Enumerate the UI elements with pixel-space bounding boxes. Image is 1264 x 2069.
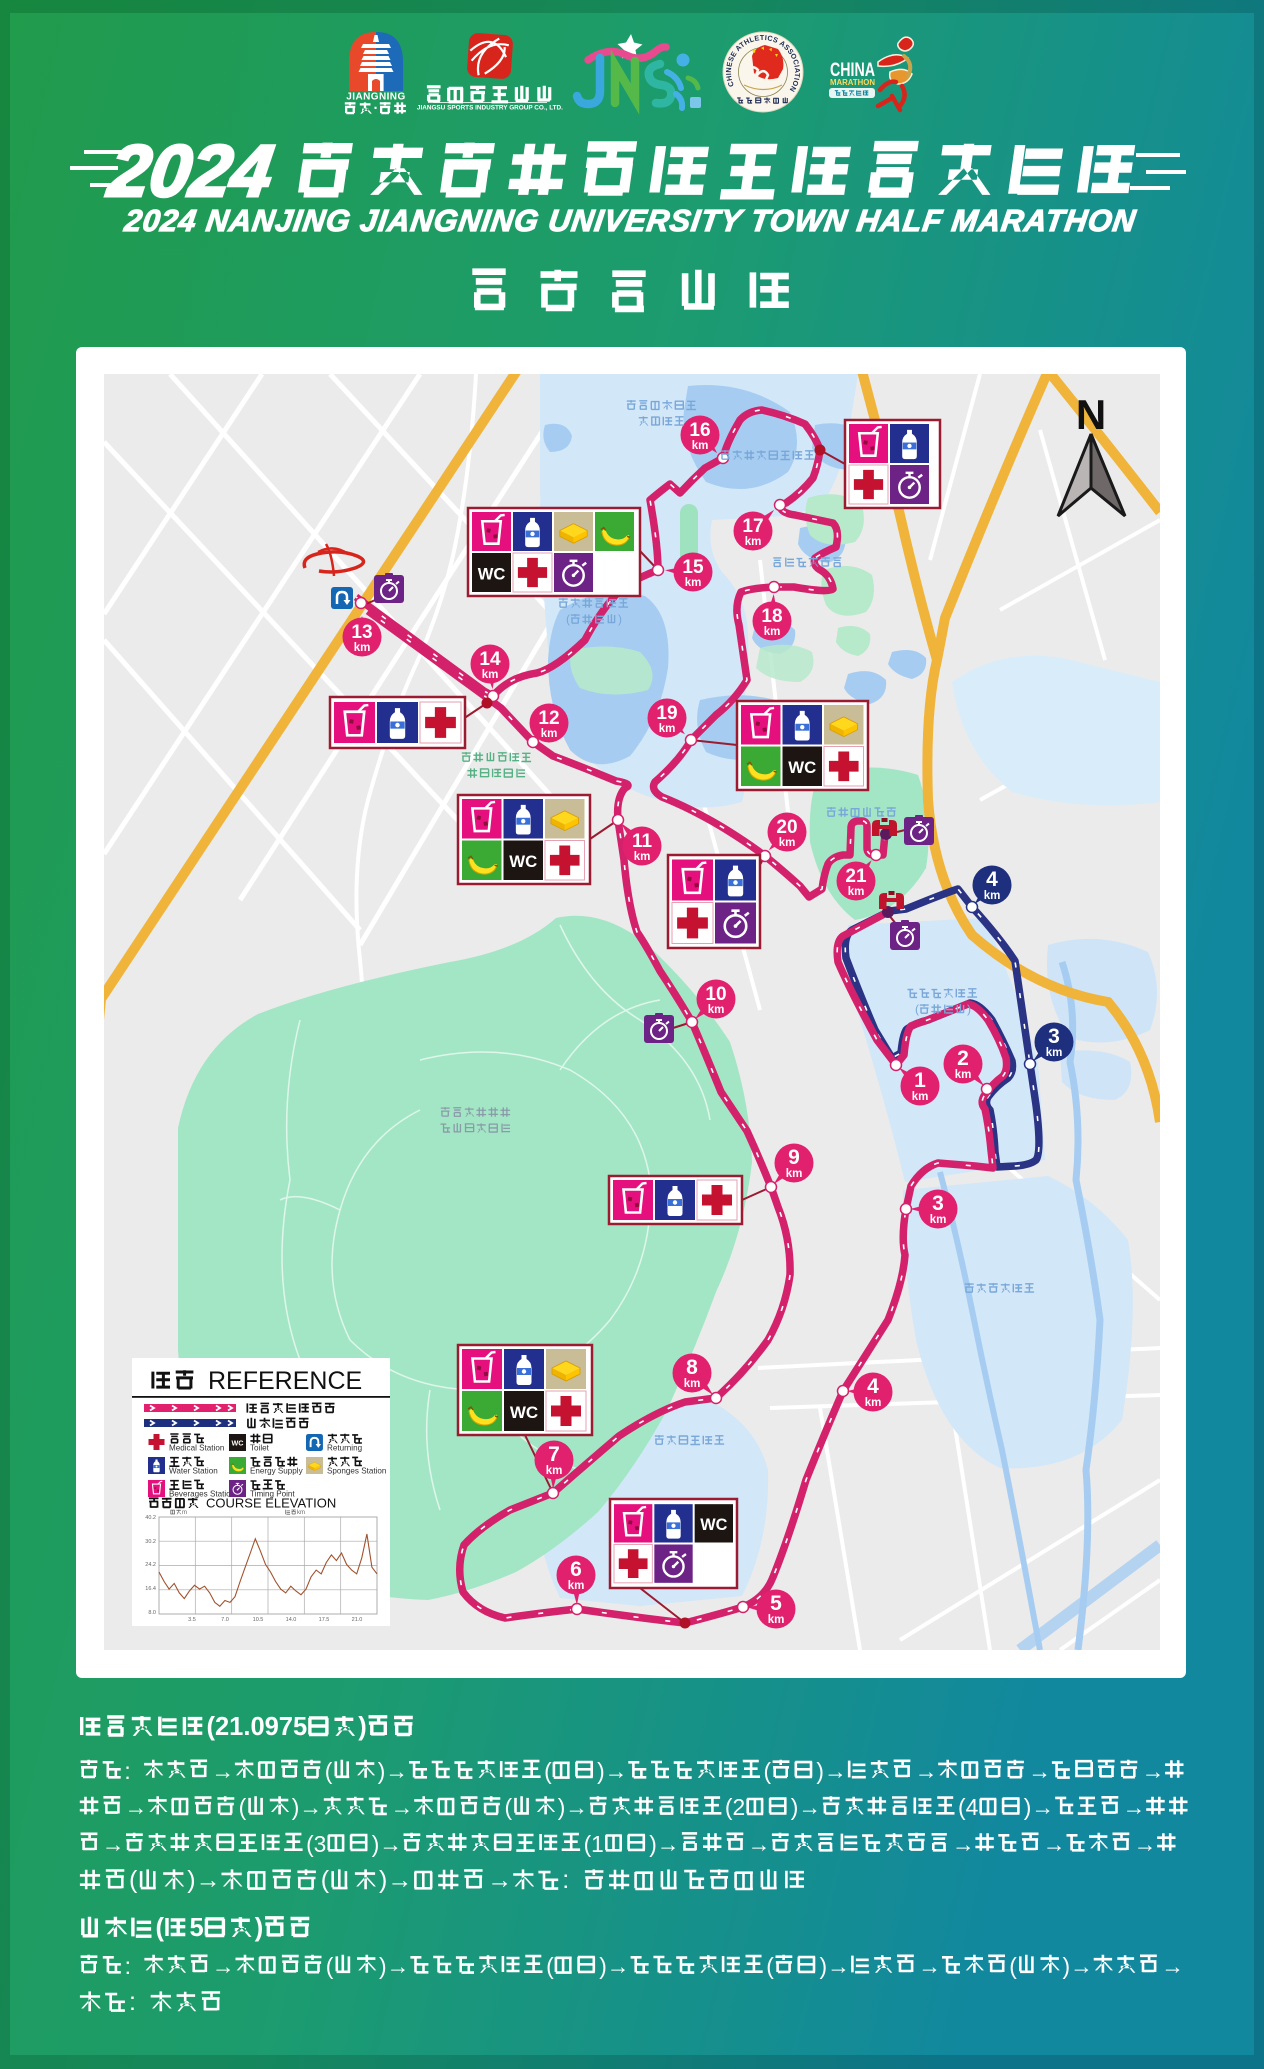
svg-text:10: 10: [705, 984, 726, 1005]
svg-text:(21.0975: (21.0975: [207, 1713, 308, 1741]
svg-text:)→: )→: [379, 1953, 409, 1979]
svg-text:)→: )→: [372, 1831, 402, 1857]
svg-text:WC: WC: [788, 758, 816, 777]
svg-text:km: km: [659, 723, 676, 735]
svg-text:COURSE ELEVATION: COURSE ELEVATION: [206, 1496, 336, 1511]
svg-text:): ): [255, 1914, 264, 1942]
svg-text:km: km: [786, 1168, 803, 1180]
svg-text:3: 3: [1048, 1025, 1060, 1048]
svg-text:3: 3: [932, 1192, 944, 1215]
svg-text:(: (: [505, 1794, 513, 1820]
svg-text:→: →: [918, 1953, 941, 1979]
svg-text:)→: )→: [379, 1866, 412, 1894]
svg-text:Energy Supply: Energy Supply: [250, 1466, 304, 1475]
svg-text:5: 5: [770, 1592, 782, 1615]
svg-text:km: km: [984, 890, 1001, 902]
svg-text:km: km: [541, 728, 558, 740]
svg-text::: :: [124, 1758, 130, 1784]
svg-text:30.2: 30.2: [145, 1539, 156, 1545]
svg-text:m: m: [182, 1510, 187, 1516]
svg-text:)→: )→: [599, 1953, 629, 1979]
svg-text:8.0: 8.0: [148, 1610, 156, 1616]
svg-text::: :: [129, 1988, 136, 2016]
svg-text:)→: )→: [820, 1953, 850, 1979]
svg-text:(: (: [156, 1914, 165, 1942]
svg-text:km: km: [955, 1069, 972, 1081]
svg-text:16.4: 16.4: [145, 1586, 156, 1592]
svg-text:km: km: [779, 837, 796, 849]
svg-text:): ): [358, 1713, 367, 1741]
svg-text:km: km: [685, 577, 702, 589]
svg-text:Sponges Station: Sponges Station: [327, 1466, 386, 1475]
svg-text:km: km: [546, 1465, 563, 1477]
svg-text:)→: )→: [187, 1866, 220, 1894]
svg-text:WC: WC: [231, 1438, 244, 1447]
svg-text:(1: (1: [584, 1831, 604, 1857]
svg-text:14.0: 14.0: [286, 1617, 297, 1623]
svg-text:(4: (4: [958, 1794, 979, 1820]
svg-text:17.5: 17.5: [319, 1617, 330, 1623]
svg-text:→: →: [102, 1831, 125, 1857]
svg-text:→: →: [391, 1794, 414, 1820]
svg-text:Toilet: Toilet: [250, 1443, 270, 1452]
svg-text:18: 18: [761, 606, 782, 627]
svg-text:km: km: [768, 1614, 785, 1626]
svg-text:13: 13: [351, 622, 372, 643]
svg-text:(: (: [764, 1758, 772, 1784]
svg-text:km: km: [568, 1580, 585, 1592]
svg-text:→: →: [1142, 1758, 1165, 1784]
svg-text:→: →: [1123, 1794, 1146, 1820]
svg-text:km: km: [848, 886, 865, 898]
svg-text:JIANGSU SPORTS INDUSTRY GROUP: JIANGSU SPORTS INDUSTRY GROUP CO., LTD.: [417, 105, 563, 112]
svg-text::: :: [125, 1953, 131, 1979]
svg-text:→: →: [1161, 1953, 1184, 1979]
svg-text:→: →: [487, 1866, 512, 1894]
svg-text:→: →: [1134, 1831, 1157, 1857]
svg-text:km: km: [684, 1378, 701, 1390]
svg-text:·: ·: [374, 101, 379, 117]
svg-text:km: km: [482, 669, 499, 681]
svg-text:WC: WC: [700, 1516, 727, 1534]
svg-text:)→: )→: [597, 1758, 627, 1784]
svg-text:WC: WC: [510, 1403, 538, 1422]
svg-text:)→: )→: [378, 1758, 408, 1784]
svg-text:REFERENCE: REFERENCE: [208, 1367, 362, 1395]
svg-text:3.5: 3.5: [188, 1617, 196, 1623]
svg-text:(: (: [544, 1758, 552, 1784]
svg-text:)→: )→: [1024, 1794, 1054, 1820]
svg-text::: :: [562, 1866, 569, 1894]
svg-text:→: →: [211, 1758, 234, 1784]
svg-text:)→: )→: [558, 1794, 588, 1820]
svg-text:N: N: [1076, 391, 1106, 438]
svg-text:4: 4: [867, 1375, 879, 1398]
svg-text:2024 NANJING JIANGNING UNIVERS: 2024 NANJING JIANGNING UNIVERSITY TOWN H…: [122, 204, 1139, 238]
svg-text:16: 16: [689, 420, 710, 441]
svg-text:8: 8: [686, 1356, 698, 1379]
svg-text:WC: WC: [509, 852, 537, 871]
svg-text:(: (: [546, 1953, 554, 1979]
svg-text:14: 14: [479, 649, 501, 670]
svg-text:10.5: 10.5: [253, 1617, 264, 1623]
svg-text:(3: (3: [306, 1831, 326, 1857]
svg-text:WC: WC: [478, 564, 506, 583]
svg-text:Returning: Returning: [327, 1443, 362, 1452]
svg-text:17: 17: [742, 516, 763, 537]
svg-text:(: (: [566, 612, 570, 626]
svg-text:)→: )→: [649, 1831, 679, 1857]
svg-text:24.2: 24.2: [145, 1562, 156, 1568]
svg-text:21.0: 21.0: [352, 1617, 363, 1623]
svg-text:Water Station: Water Station: [169, 1466, 218, 1475]
svg-text:)→: )→: [791, 1794, 821, 1820]
svg-text:): ): [967, 1002, 971, 1016]
svg-text:(: (: [766, 1953, 774, 1979]
svg-text:(: (: [325, 1758, 333, 1784]
svg-text:7.0: 7.0: [221, 1617, 229, 1623]
svg-text:km: km: [692, 440, 709, 452]
svg-text:→: →: [1043, 1831, 1066, 1857]
svg-text:11: 11: [632, 831, 653, 852]
svg-text:km: km: [634, 851, 651, 863]
svg-text:(: (: [1009, 1953, 1017, 1979]
svg-text:(: (: [321, 1866, 330, 1894]
svg-text:): ): [618, 612, 622, 626]
svg-text:40.2: 40.2: [145, 1515, 156, 1521]
svg-text:)→: )→: [1063, 1953, 1093, 1979]
svg-text:→: →: [212, 1953, 235, 1979]
svg-text:km: km: [930, 1214, 947, 1226]
svg-text:km: km: [912, 1091, 929, 1103]
svg-text:Medical Station: Medical Station: [169, 1443, 224, 1452]
svg-text:→: →: [125, 1794, 148, 1820]
svg-text:km: km: [865, 1397, 882, 1409]
svg-text:4: 4: [986, 868, 998, 891]
svg-text:km: km: [745, 536, 762, 548]
svg-text:21: 21: [845, 866, 867, 887]
svg-text:km: km: [354, 642, 371, 654]
svg-text:9: 9: [788, 1146, 800, 1169]
svg-text:(: (: [129, 1866, 138, 1894]
svg-text:20: 20: [776, 817, 797, 838]
svg-text:km: km: [764, 626, 781, 638]
svg-text:(: (: [239, 1794, 247, 1820]
svg-text:(: (: [326, 1953, 334, 1979]
svg-text:7: 7: [548, 1443, 560, 1466]
svg-text:→: →: [748, 1831, 771, 1857]
svg-text:km: km: [708, 1004, 725, 1016]
svg-text:19: 19: [656, 703, 677, 724]
svg-text:(: (: [915, 1002, 919, 1016]
svg-text:)→: )→: [292, 1794, 322, 1820]
svg-text:)→: )→: [816, 1758, 846, 1784]
svg-text:2024: 2024: [102, 130, 278, 212]
svg-text:2: 2: [957, 1047, 969, 1070]
svg-text:→: →: [915, 1758, 938, 1784]
svg-text:km: km: [1046, 1047, 1063, 1059]
svg-text:→: →: [1028, 1758, 1051, 1784]
svg-text:MARATHON: MARATHON: [830, 78, 875, 87]
svg-text:→: →: [952, 1831, 975, 1857]
svg-text:5: 5: [190, 1914, 204, 1942]
svg-text:(2: (2: [725, 1794, 745, 1820]
svg-text:km: km: [297, 1510, 305, 1516]
svg-text:12: 12: [538, 708, 559, 729]
svg-text:6: 6: [570, 1558, 582, 1581]
svg-text:1: 1: [914, 1069, 926, 1092]
svg-text:15: 15: [682, 557, 704, 578]
